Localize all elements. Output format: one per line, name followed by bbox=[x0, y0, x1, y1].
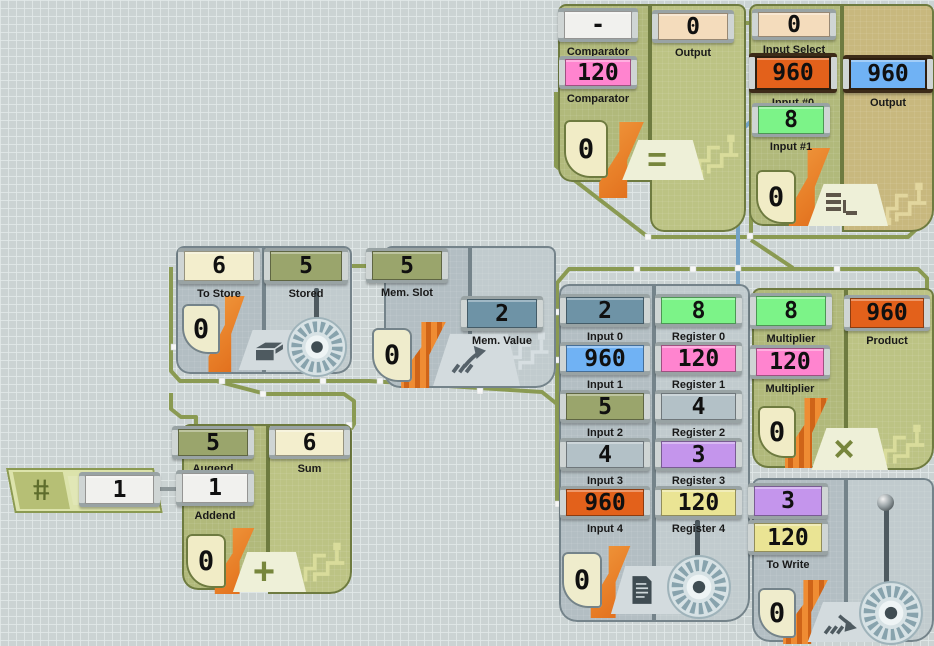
port-multiplier-multiplier[interactable]: 8 bbox=[750, 293, 832, 329]
port-label: Multiplier bbox=[738, 383, 842, 395]
port-adder-augend[interactable]: 5 bbox=[172, 426, 254, 459]
port-adder-sum[interactable]: 6 bbox=[269, 426, 350, 459]
wire-node bbox=[645, 234, 651, 240]
delay-badge: 0 bbox=[564, 120, 608, 178]
port-value: 5 bbox=[566, 393, 644, 420]
port-label: Stored bbox=[252, 288, 360, 300]
port-value: 120 bbox=[754, 523, 822, 552]
port-value: 2 bbox=[467, 299, 537, 328]
port-value: 960 bbox=[566, 489, 644, 516]
port-registers-register-2[interactable]: 4 bbox=[655, 390, 742, 423]
port-registers-input-1[interactable]: 960 bbox=[560, 342, 650, 375]
wire-node bbox=[634, 266, 640, 272]
port-multiplexer-input-select[interactable]: 0 bbox=[752, 9, 836, 40]
port-label: Output bbox=[831, 97, 934, 109]
wire-node bbox=[747, 233, 753, 239]
port-multiplexer-output[interactable]: 960 bbox=[843, 55, 933, 93]
port-value: 3 bbox=[754, 486, 822, 516]
wire[interactable] bbox=[216, 381, 354, 429]
port-memory_read-mem-slot[interactable]: 5 bbox=[366, 248, 448, 283]
port-memory_read-mem-value[interactable]: 2 bbox=[461, 296, 543, 331]
wire-node bbox=[320, 378, 326, 384]
wire-node bbox=[377, 378, 383, 384]
port-label: Output bbox=[640, 47, 746, 59]
circuit-board: 0 = 0 0 0 bbox=[0, 0, 934, 646]
dial-icon[interactable] bbox=[286, 316, 348, 378]
port-registers-register-1[interactable]: 120 bbox=[655, 342, 742, 375]
port-constant-out[interactable]: 1 bbox=[79, 472, 160, 507]
port-value: 5 bbox=[372, 251, 442, 280]
lever-knob[interactable] bbox=[877, 494, 894, 511]
port-latch-to-store[interactable]: 6 bbox=[178, 248, 260, 284]
port-value: 4 bbox=[661, 393, 736, 420]
port-registers-input-2[interactable]: 5 bbox=[560, 390, 650, 423]
port-registers-input-4[interactable]: 960 bbox=[560, 486, 650, 519]
port-value: 960 bbox=[850, 298, 924, 328]
port-value: 3 bbox=[661, 441, 736, 468]
wire-node bbox=[219, 378, 225, 384]
port-multiplexer-input-0[interactable]: 960 bbox=[749, 53, 837, 93]
circuit-trace-icon bbox=[882, 180, 930, 226]
port-label: Mem. Value bbox=[449, 335, 555, 347]
circuit-trace-icon bbox=[880, 422, 928, 468]
port-value: 120 bbox=[661, 489, 736, 516]
port-value: 120 bbox=[756, 348, 824, 376]
port-value: 960 bbox=[566, 345, 644, 372]
port-value: 1 bbox=[182, 473, 248, 503]
port-comparator-comparator[interactable]: 120 bbox=[559, 56, 637, 89]
port-value: 8 bbox=[758, 106, 824, 134]
dial-icon[interactable] bbox=[858, 580, 924, 646]
port-value: 2 bbox=[566, 297, 644, 324]
port-value: 120 bbox=[661, 345, 736, 372]
port-multiplier-product[interactable]: 960 bbox=[844, 295, 930, 331]
port-registers-register-3[interactable]: 3 bbox=[655, 438, 742, 471]
port-value: 4 bbox=[566, 441, 644, 468]
port-registers-register-0[interactable]: 8 bbox=[655, 294, 742, 327]
port-value: 8 bbox=[756, 296, 826, 326]
port-value: 6 bbox=[184, 251, 254, 281]
wire-node bbox=[735, 265, 741, 271]
port-label: Input #1 bbox=[740, 141, 842, 153]
port-value: 5 bbox=[270, 251, 342, 281]
port-label: To Write bbox=[736, 559, 840, 571]
wire-node bbox=[834, 266, 840, 272]
port-value: 960 bbox=[755, 56, 831, 90]
port-value: 6 bbox=[275, 429, 344, 456]
port-value: 0 bbox=[658, 13, 728, 40]
port-value: - bbox=[564, 11, 632, 39]
delay-badge: 0 bbox=[562, 552, 602, 608]
wire[interactable] bbox=[751, 240, 793, 268]
port-comparator-comparator[interactable]: - bbox=[558, 8, 638, 42]
port-comparator-output[interactable]: 0 bbox=[652, 10, 734, 43]
wire-node bbox=[260, 391, 266, 397]
port-value: 0 bbox=[758, 12, 830, 37]
port-adder-addend[interactable]: 1 bbox=[176, 470, 254, 506]
port-registers-input-3[interactable]: 4 bbox=[560, 438, 650, 471]
port-memory_write-to-write[interactable]: 120 bbox=[748, 520, 828, 555]
circuit-trace-icon bbox=[300, 540, 348, 586]
port-label: Mem. Slot bbox=[354, 287, 460, 299]
port-memory_write-mem-slot[interactable]: 3 bbox=[748, 483, 828, 519]
port-label: Multiplier bbox=[738, 333, 844, 345]
port-label: Sum bbox=[257, 463, 362, 475]
wire-node bbox=[690, 266, 696, 272]
port-registers-input-0[interactable]: 2 bbox=[560, 294, 650, 327]
port-registers-register-4[interactable]: 120 bbox=[655, 486, 742, 519]
port-label: Comparator bbox=[547, 93, 649, 105]
port-value: 5 bbox=[178, 429, 248, 456]
port-label: Product bbox=[832, 335, 934, 347]
dial-icon[interactable] bbox=[666, 554, 732, 620]
port-value: 960 bbox=[849, 58, 927, 90]
port-value: 1 bbox=[85, 475, 154, 504]
port-latch-stored[interactable]: 5 bbox=[264, 248, 348, 284]
port-multiplier-multiplier[interactable]: 120 bbox=[750, 345, 830, 379]
wire-node bbox=[477, 388, 483, 394]
wire[interactable] bbox=[171, 393, 196, 427]
port-value: 120 bbox=[565, 59, 631, 86]
hash-icon: # bbox=[13, 472, 70, 509]
port-label: Addend bbox=[164, 510, 266, 522]
port-value: 8 bbox=[661, 297, 736, 324]
port-multiplexer-input-1[interactable]: 8 bbox=[752, 103, 830, 137]
